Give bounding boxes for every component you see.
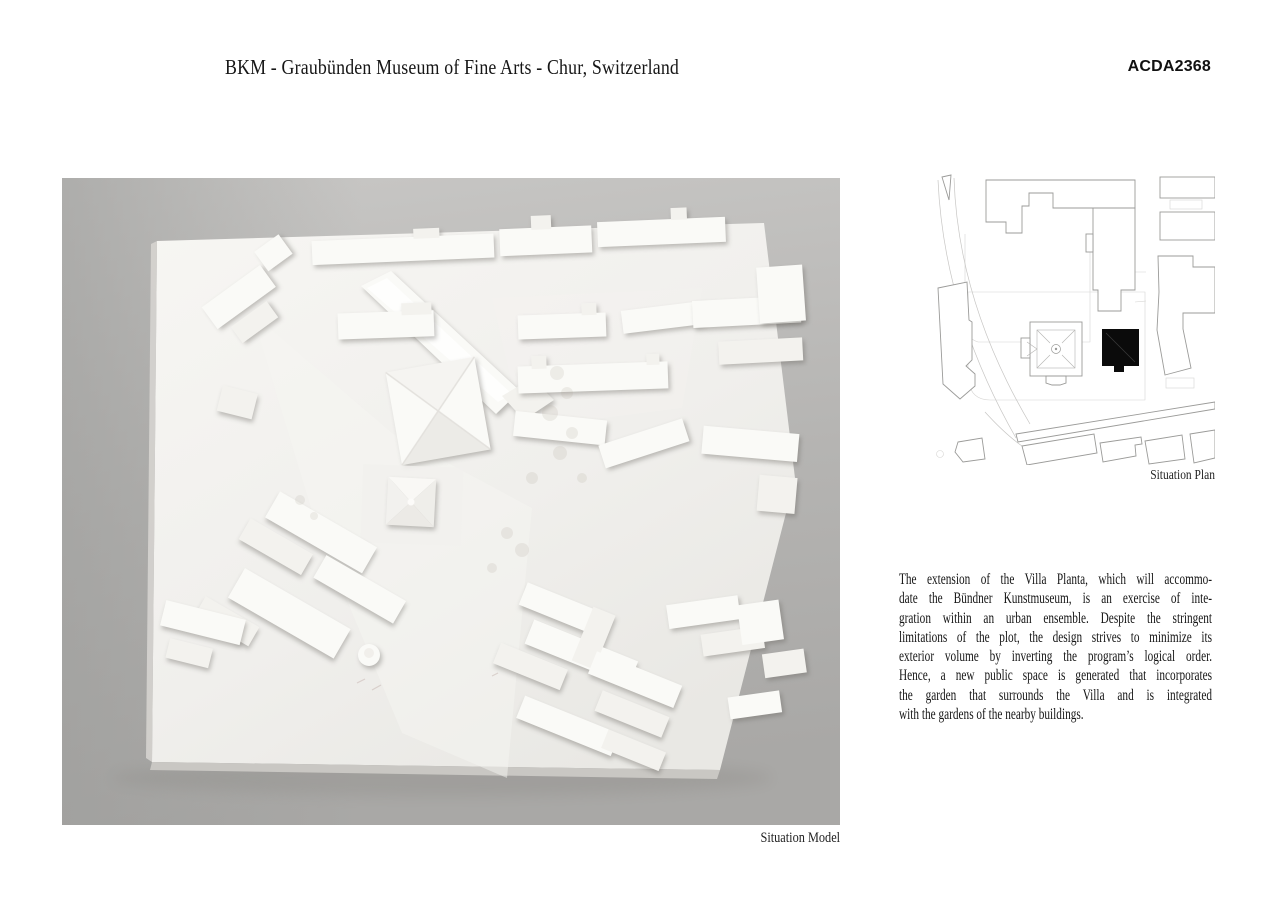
description-paragraph: The extension of the Villa Planta, which… xyxy=(899,570,1212,724)
new-extension-footprint xyxy=(1102,329,1139,372)
east-corner-building xyxy=(756,265,806,324)
project-code: ACDA2368 xyxy=(1128,58,1211,76)
round-tower xyxy=(358,644,380,666)
description-line: date the Bündner Kunstmuseum, is an exer… xyxy=(899,589,1212,608)
description-line: The extension of the Villa Planta, which… xyxy=(899,570,1212,589)
villa-planta-plan xyxy=(1021,322,1082,385)
situation-model-photo xyxy=(62,178,840,825)
description-line: limitations of the plot, the design stri… xyxy=(899,628,1212,647)
situation-plan-figure: Situation Plan xyxy=(930,172,1215,484)
villa-planta-model xyxy=(361,464,464,545)
central-hipped-building xyxy=(386,357,491,465)
context-buildings xyxy=(937,175,1216,465)
description-line: the garden that surrounds the Villa and … xyxy=(899,686,1212,705)
page-title-text: BKM - Graubünden Museum of Fine Arts - C… xyxy=(225,55,679,80)
description-line: exterior volume by inverting the program… xyxy=(899,647,1212,666)
model-caption: Situation Model xyxy=(62,830,840,847)
situation-model-figure: Situation Model xyxy=(62,178,840,847)
description-line: gration within an urban ensemble. Despit… xyxy=(899,609,1212,628)
page-title: BKM - Graubünden Museum of Fine Arts - C… xyxy=(225,55,759,80)
description-line: with the gardens of the nearby buildings… xyxy=(899,705,1212,724)
description-line: Hence, a new public space is generated t… xyxy=(899,666,1212,685)
situation-plan-drawing xyxy=(930,172,1215,465)
plan-caption: Situation Plan xyxy=(930,468,1215,484)
presentation-board: BKM - Graubünden Museum of Fine Arts - C… xyxy=(0,0,1273,900)
